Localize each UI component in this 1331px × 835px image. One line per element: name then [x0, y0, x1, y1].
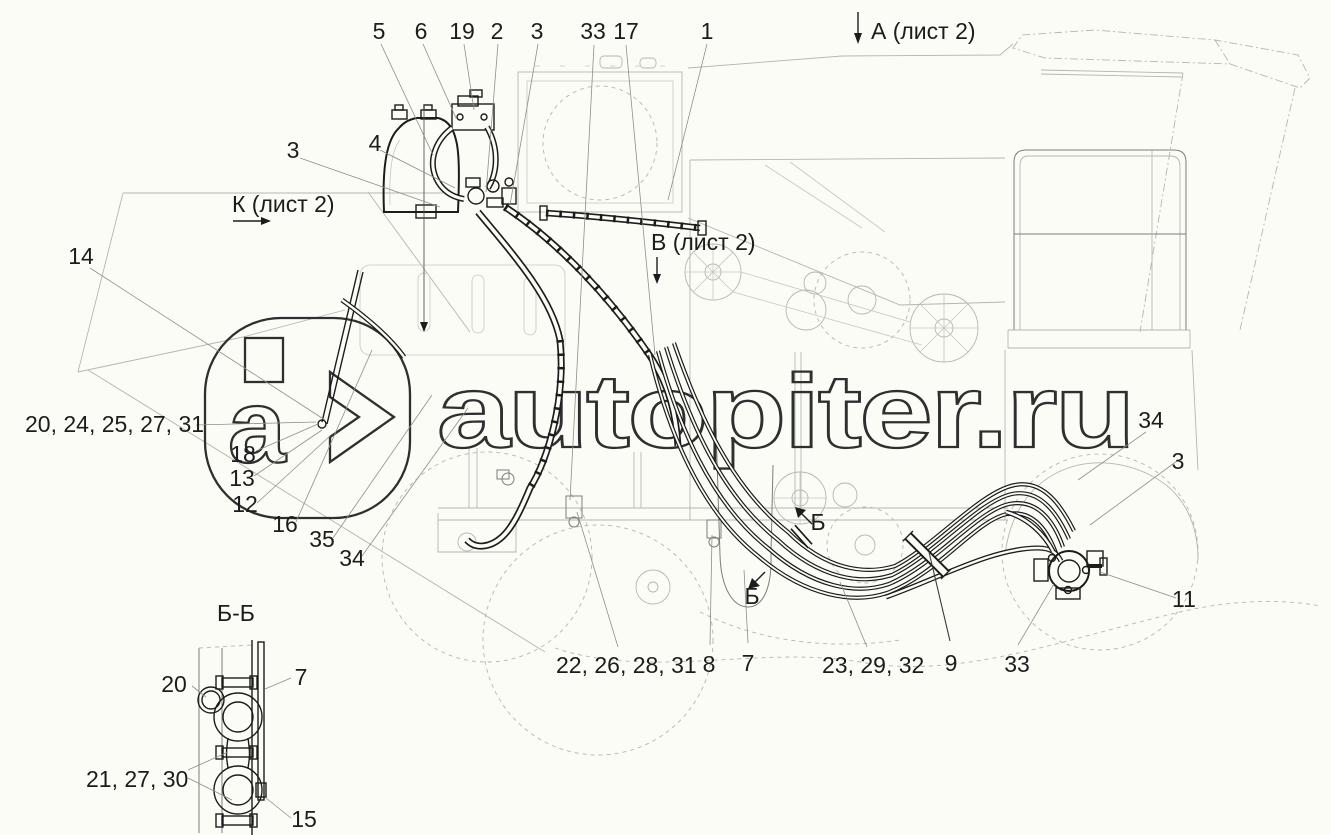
- section-b-marker-top: Б: [810, 509, 825, 535]
- callout-16: 16: [272, 511, 298, 537]
- callout-3-left: 3: [287, 137, 300, 163]
- callout-cluster-23: 23, 29, 32: [822, 652, 924, 678]
- callout-15: 15: [291, 806, 317, 832]
- filler-connector: [452, 90, 494, 130]
- callout-1: 1: [701, 18, 714, 44]
- small-pipe: [322, 270, 363, 424]
- callout-13: 13: [229, 465, 255, 491]
- callout-14: 14: [68, 243, 94, 269]
- parts-diagram-page: a autopiter.ru: [0, 0, 1331, 835]
- cab: [1013, 30, 1310, 332]
- pump-unit: [1034, 551, 1107, 599]
- callout-4: 4: [369, 130, 382, 156]
- callout-cluster-21: 21, 27, 30: [86, 766, 188, 792]
- callout-8: 8: [703, 651, 716, 677]
- callout-7-detail: 7: [295, 664, 308, 690]
- expansion-tank: [384, 104, 459, 332]
- callout-cluster-22: 22, 26, 28, 31: [556, 652, 697, 678]
- section-title: Б-Б: [217, 600, 255, 626]
- callout-34-left: 34: [339, 545, 365, 571]
- watermark-text: autopiter.ru: [437, 354, 1133, 470]
- callout-17: 17: [613, 18, 639, 44]
- callout-18: 18: [230, 441, 256, 467]
- diagram-canvas: a autopiter.ru: [0, 0, 1331, 835]
- callout-12: 12: [232, 491, 258, 517]
- callout-34-right: 34: [1138, 407, 1164, 433]
- cooling-hose-assembly: [318, 90, 1107, 599]
- view-v-label: В (лист 2): [651, 229, 756, 255]
- radiator: [518, 56, 682, 212]
- view-a-label: А (лист 2): [871, 18, 976, 44]
- view-k-label: К (лист 2): [232, 191, 335, 217]
- callout-9: 9: [945, 650, 958, 676]
- callout-6: 6: [415, 18, 428, 44]
- callout-33-bottom: 33: [1004, 651, 1030, 677]
- callout-35: 35: [309, 526, 335, 552]
- callout-20-detail: 20: [161, 671, 187, 697]
- callout-19: 19: [449, 18, 475, 44]
- section-b-marker-bottom: Б: [744, 583, 759, 609]
- callout-cluster-left: 20, 24, 25, 27, 31: [25, 411, 204, 437]
- callout-5: 5: [373, 18, 386, 44]
- callout-11: 11: [1172, 586, 1196, 612]
- callout-33-top: 33: [580, 18, 606, 44]
- callout-3-right: 3: [1172, 448, 1185, 474]
- callout-2: 2: [491, 18, 504, 44]
- front-wheel-right: [483, 525, 713, 755]
- watermark-logo-chevron: [330, 372, 394, 462]
- callout-7-bottom: 7: [742, 650, 755, 676]
- callout-3-top: 3: [531, 18, 544, 44]
- section-detail: [198, 640, 266, 835]
